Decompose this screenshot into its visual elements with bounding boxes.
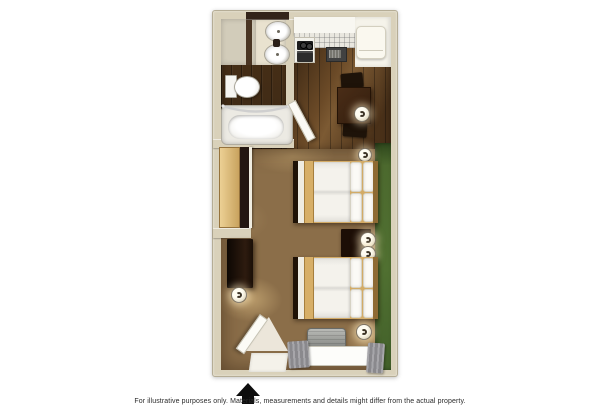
disclaimer-text: For illustrative purposes only. Material…	[0, 398, 600, 405]
sink-drain-icon	[276, 53, 279, 56]
vanity-mirror	[246, 12, 289, 20]
faucet-icon	[273, 39, 280, 47]
pillow	[350, 258, 362, 288]
pillow	[350, 289, 362, 319]
table-lamp-icon	[354, 106, 370, 122]
bed-duvet	[314, 258, 350, 318]
wall-sconce-icon	[356, 324, 372, 340]
pillow	[350, 162, 362, 192]
shower-curtain-rod-icon	[221, 101, 291, 117]
floorplan-image: For illustrative purposes only. Material…	[0, 0, 600, 420]
bed-headboard	[373, 161, 378, 223]
microwave	[326, 47, 347, 62]
sink-icon	[264, 44, 290, 65]
bed-pillows	[350, 258, 374, 318]
closet-interior	[240, 147, 249, 228]
bed-runner	[304, 257, 314, 319]
wall-closet-stub	[213, 228, 251, 238]
curtain-left	[287, 340, 310, 368]
microwave-door	[329, 50, 341, 58]
window	[308, 346, 370, 366]
bed-headboard	[373, 257, 378, 319]
bed-2	[293, 257, 378, 319]
entry-doorway	[249, 353, 289, 372]
bed-1	[293, 161, 378, 223]
closet-frame	[249, 147, 252, 228]
bathtub-basin	[228, 115, 284, 139]
closet-door	[219, 147, 240, 228]
bed-pillows	[350, 162, 374, 222]
dresser	[227, 239, 253, 288]
curtain-right	[366, 342, 385, 373]
refrigerator	[356, 26, 386, 59]
burner-icon	[306, 43, 313, 50]
pillow	[350, 193, 362, 223]
bed-duvet	[314, 162, 350, 222]
sink-drain-icon	[277, 30, 280, 33]
floorplan	[212, 10, 398, 377]
wall-sconce-icon	[358, 148, 372, 162]
dresser-lamp-icon	[231, 287, 247, 303]
toilet-bowl	[234, 76, 260, 98]
oven-door	[297, 51, 313, 62]
refrigerator-handle	[359, 50, 383, 51]
bed-runner	[304, 161, 314, 223]
vanity-edge	[246, 19, 252, 65]
